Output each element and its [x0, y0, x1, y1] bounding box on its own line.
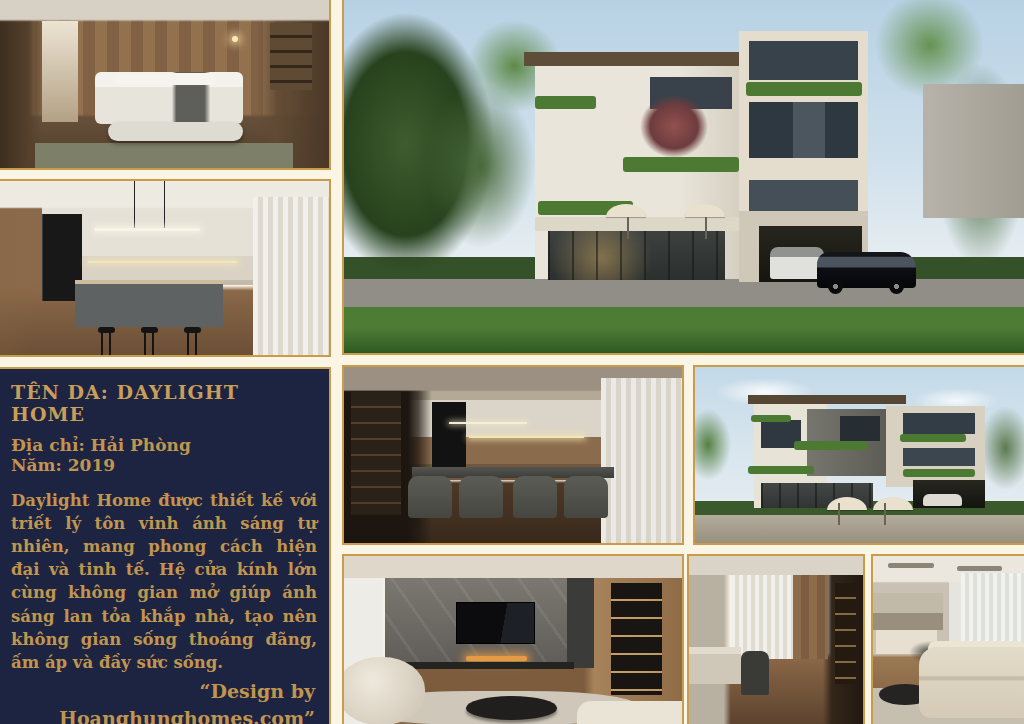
- umbrella-pole: [705, 217, 707, 239]
- wall-lamp: [232, 36, 238, 42]
- coffee-table: [466, 696, 557, 720]
- photo-bedroom: [0, 0, 331, 170]
- kitchen-island: [689, 647, 741, 684]
- window: [903, 413, 976, 434]
- balcony-planter: [903, 469, 976, 477]
- bar-stool: [141, 327, 158, 333]
- kitchen-background: [873, 593, 943, 630]
- dining-chair: [741, 651, 769, 695]
- tree: [979, 406, 1024, 490]
- project-address: Địa chỉ: Hải Phòng: [11, 435, 317, 455]
- sofa-corner: [577, 701, 684, 724]
- dining-chair: [408, 476, 452, 518]
- neighbor-building: [923, 84, 1024, 219]
- window: [749, 41, 858, 80]
- balcony-planter: [748, 466, 814, 475]
- roof-slab: [524, 52, 749, 66]
- bar-stool: [184, 327, 201, 333]
- glass-storefront: [548, 231, 725, 281]
- balcony-planter: [535, 96, 596, 108]
- display-shelves: [611, 583, 662, 695]
- window: [749, 180, 858, 215]
- photo-living-sofa: [871, 554, 1024, 724]
- balcony-planter: [794, 441, 867, 450]
- project-info-panel: TÊN DA: DAYLIGHT HOME Địa chỉ: Hải Phòng…: [0, 367, 331, 724]
- tv-screen: [456, 602, 536, 645]
- refrigerator: [432, 402, 466, 472]
- design-credit: “Design by Hoanghunghomes.com”: [51, 678, 315, 724]
- dining-chair: [459, 476, 503, 518]
- bar-stool: [98, 327, 115, 333]
- wood-wall: [793, 575, 828, 660]
- photo-living-tv: [342, 554, 684, 724]
- photo-hallway: [687, 554, 865, 724]
- white-car: [923, 494, 963, 506]
- roof-slab: [748, 395, 906, 404]
- car-wheel: [889, 279, 904, 294]
- kitchen-island: [75, 280, 224, 327]
- balcony-planter: [746, 82, 862, 96]
- ceiling-light-slot: [957, 566, 1003, 571]
- patio-umbrella: [873, 497, 913, 510]
- bed-pillows: [115, 73, 214, 85]
- photo-exterior-main: [342, 0, 1024, 355]
- portfolio-page: TÊN DA: DAYLIGHT HOME Địa chỉ: Hải Phòng…: [0, 0, 1024, 724]
- window: [749, 102, 858, 159]
- dark-side-panel: [567, 578, 594, 668]
- boucle-armchair: [342, 657, 425, 724]
- slatted-facade: [538, 109, 640, 201]
- linear-pendant-light: [95, 228, 201, 231]
- pendant-cord: [134, 181, 135, 228]
- window: [903, 448, 976, 466]
- window: [840, 416, 880, 441]
- sheer-curtain: [601, 378, 682, 543]
- white-sports-car: [770, 247, 824, 279]
- dining-chair: [513, 476, 557, 518]
- dining-chair: [564, 476, 608, 518]
- ceiling-light-slot: [888, 563, 934, 568]
- umbrella-pole: [838, 503, 840, 525]
- balcony-planter: [900, 434, 966, 442]
- bed-bench: [108, 122, 243, 141]
- photo-kitchen: [0, 179, 331, 357]
- car-wheel: [828, 279, 843, 294]
- pendant-cord: [164, 181, 165, 228]
- linear-pendant-light: [449, 422, 527, 424]
- under-cabinet-light: [88, 261, 237, 263]
- project-year: Năm: 2019: [11, 455, 317, 475]
- project-title: TÊN DA: DAYLIGHT HOME: [11, 381, 317, 425]
- flowering-vine: [640, 95, 708, 159]
- balcony-planter: [623, 157, 739, 173]
- umbrella-pole: [884, 503, 886, 525]
- photo-dining: [342, 365, 684, 545]
- photo-exterior-side: [693, 365, 1024, 545]
- corridor-light: [42, 21, 78, 122]
- sectional-sofa: [919, 647, 1024, 718]
- balcony-planter: [751, 415, 791, 422]
- wall-shelves: [270, 23, 313, 91]
- sheer-curtain: [253, 197, 329, 355]
- project-description: Daylight Home được thiết kế với triết lý…: [11, 489, 317, 674]
- under-cabinet-light: [469, 436, 584, 438]
- ground-floor-fascia: [535, 217, 739, 231]
- wine-cabinet: [351, 392, 402, 515]
- palm-fronds: [693, 409, 731, 479]
- fireplace: [466, 656, 527, 661]
- rug: [35, 143, 292, 168]
- umbrella-pole: [627, 217, 629, 239]
- display-shelves: [835, 583, 856, 684]
